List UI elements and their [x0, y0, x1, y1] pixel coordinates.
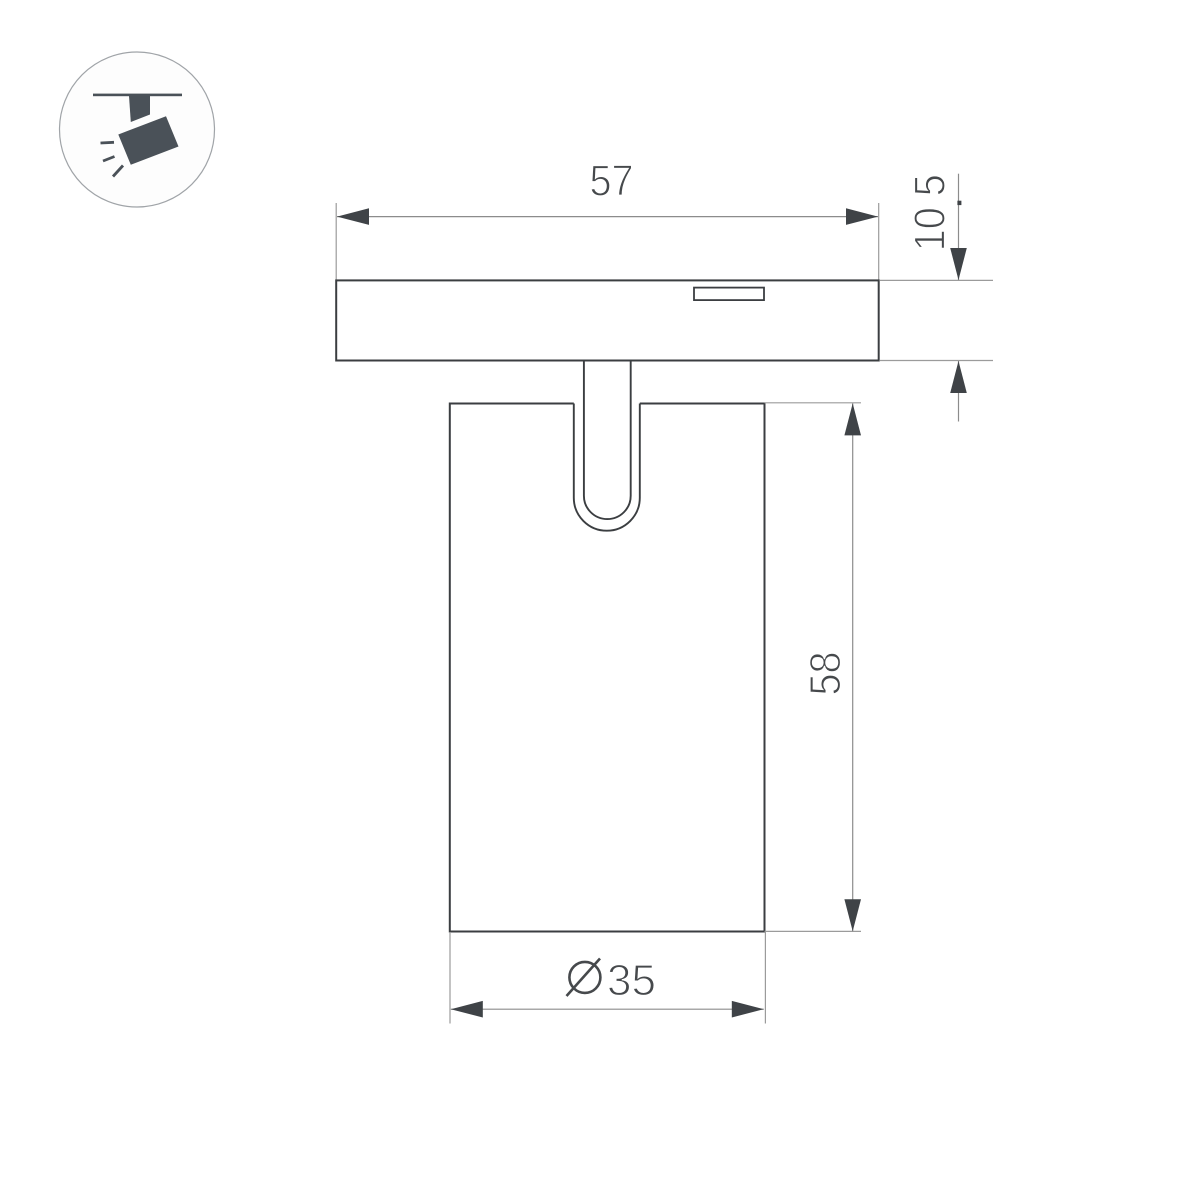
svg-text:10 5: 10 5 [905, 174, 954, 251]
svg-text:58: 58 [800, 651, 849, 695]
svg-text:35: 35 [607, 956, 656, 1005]
svg-text:57: 57 [589, 155, 633, 204]
